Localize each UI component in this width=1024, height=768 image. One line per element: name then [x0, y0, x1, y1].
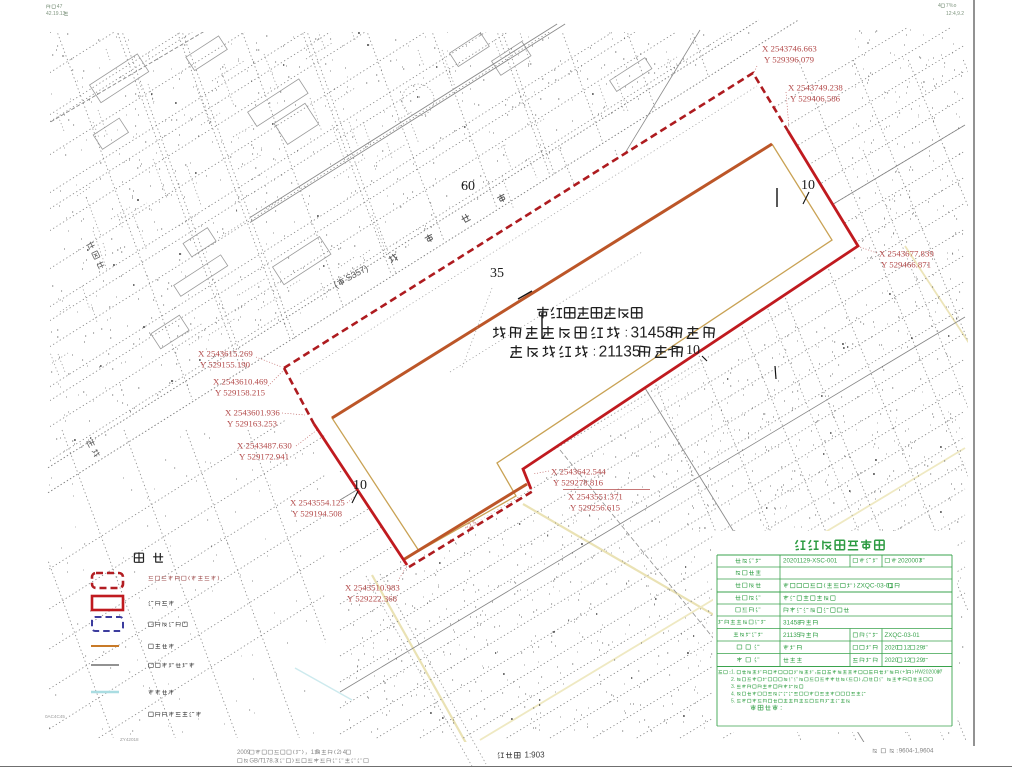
svg-text:29: 29 — [916, 657, 923, 664]
svg-text:，1:5: ，1:5 — [305, 750, 320, 756]
svg-text:21135: 21135 — [599, 344, 641, 361]
svg-text:X 2543610.469: X 2543610.469 — [213, 376, 268, 386]
svg-text:4: 4 — [938, 3, 941, 9]
svg-text:47: 47 — [57, 4, 63, 10]
svg-text:，: ， — [815, 670, 820, 676]
svg-text:Y 529222.368: Y 529222.368 — [347, 594, 398, 604]
svg-text:Y 529256.615: Y 529256.615 — [570, 503, 621, 513]
svg-text:X 2543551.371: X 2543551.371 — [568, 491, 623, 501]
svg-text:20201129-XSC-001: 20201129-XSC-001 — [783, 557, 838, 564]
svg-text:2.: 2. — [731, 677, 735, 683]
svg-text:Y 529396.079: Y 529396.079 — [764, 55, 815, 65]
svg-text:2020: 2020 — [885, 644, 899, 651]
svg-text:35: 35 — [490, 266, 504, 281]
svg-text:10: 10 — [801, 178, 815, 193]
svg-text:7％о: 7％о — [946, 3, 957, 9]
svg-text:Y 529278.816: Y 529278.816 — [553, 478, 604, 488]
svg-text:1.: 1. — [731, 670, 735, 676]
svg-text:29: 29 — [916, 644, 923, 651]
svg-text:12:4,9.2: 12:4,9.2 — [946, 11, 964, 17]
svg-text:X 2543615.269: X 2543615.269 — [198, 348, 253, 358]
svg-text:12: 12 — [904, 657, 911, 664]
svg-text:，: ， — [861, 677, 866, 683]
svg-text:X 2543487.630: X 2543487.630 — [237, 440, 292, 450]
svg-text:Y 529194.508: Y 529194.508 — [292, 509, 343, 519]
svg-text:31458: 31458 — [631, 325, 674, 342]
svg-text:Y 529172.941: Y 529172.941 — [239, 452, 289, 462]
svg-text:2009: 2009 — [237, 750, 251, 756]
svg-text:ZXQC-03-01: ZXQC-03-01 — [885, 632, 921, 639]
svg-text:2018: 2018 — [128, 737, 139, 742]
svg-text:21135: 21135 — [783, 632, 801, 639]
svg-text:X 2543554.125: X 2543554.125 — [290, 497, 345, 507]
svg-text:2020007: 2020007 — [898, 557, 923, 564]
svg-text:0AC4C45: 0AC4C45 — [45, 714, 65, 719]
svg-text:Y 529466.871: Y 529466.871 — [881, 260, 931, 270]
svg-text:X 2543746.663: X 2543746.663 — [762, 43, 817, 53]
svg-text:X 2543601.936: X 2543601.936 — [225, 407, 280, 417]
svg-text:ZXQC-03-01: ZXQC-03-01 — [857, 583, 894, 590]
svg-text:X 2543642.544: X 2543642.544 — [551, 466, 606, 476]
svg-text:9604-1,9604: 9604-1,9604 — [899, 748, 934, 755]
svg-text:Y 529158.215: Y 529158.215 — [215, 388, 266, 398]
svg-text:Y 529155.190: Y 529155.190 — [200, 360, 251, 370]
svg-text:GB/T: GB/T — [249, 759, 263, 765]
svg-text:Y 529406.586: Y 529406.586 — [790, 94, 841, 104]
svg-text:10: 10 — [686, 343, 700, 358]
svg-text:X 2543749.238: X 2543749.238 — [788, 82, 843, 92]
svg-text:1:903: 1:903 — [525, 751, 546, 760]
svg-text:HW2020007: HW2020007 — [915, 670, 943, 676]
svg-text:Y 529163.253: Y 529163.253 — [227, 419, 278, 429]
svg-text:3.: 3. — [731, 684, 735, 690]
svg-text:4.: 4. — [731, 691, 735, 697]
svg-text:178.3: 178.3 — [263, 759, 279, 765]
svg-text:X 2543677.839: X 2543677.839 — [879, 248, 934, 258]
svg-text:10: 10 — [353, 478, 367, 493]
svg-text:60: 60 — [461, 179, 475, 194]
svg-text:2020: 2020 — [885, 657, 899, 664]
svg-text:+1: +1 — [902, 670, 908, 676]
svg-text:5.: 5. — [731, 699, 735, 705]
svg-text:12: 12 — [904, 644, 911, 651]
svg-text:42.19.13: 42.19.13 — [46, 11, 66, 17]
svg-text:31458: 31458 — [783, 620, 801, 627]
svg-text:X 2543510.983: X 2543510.983 — [345, 582, 400, 592]
